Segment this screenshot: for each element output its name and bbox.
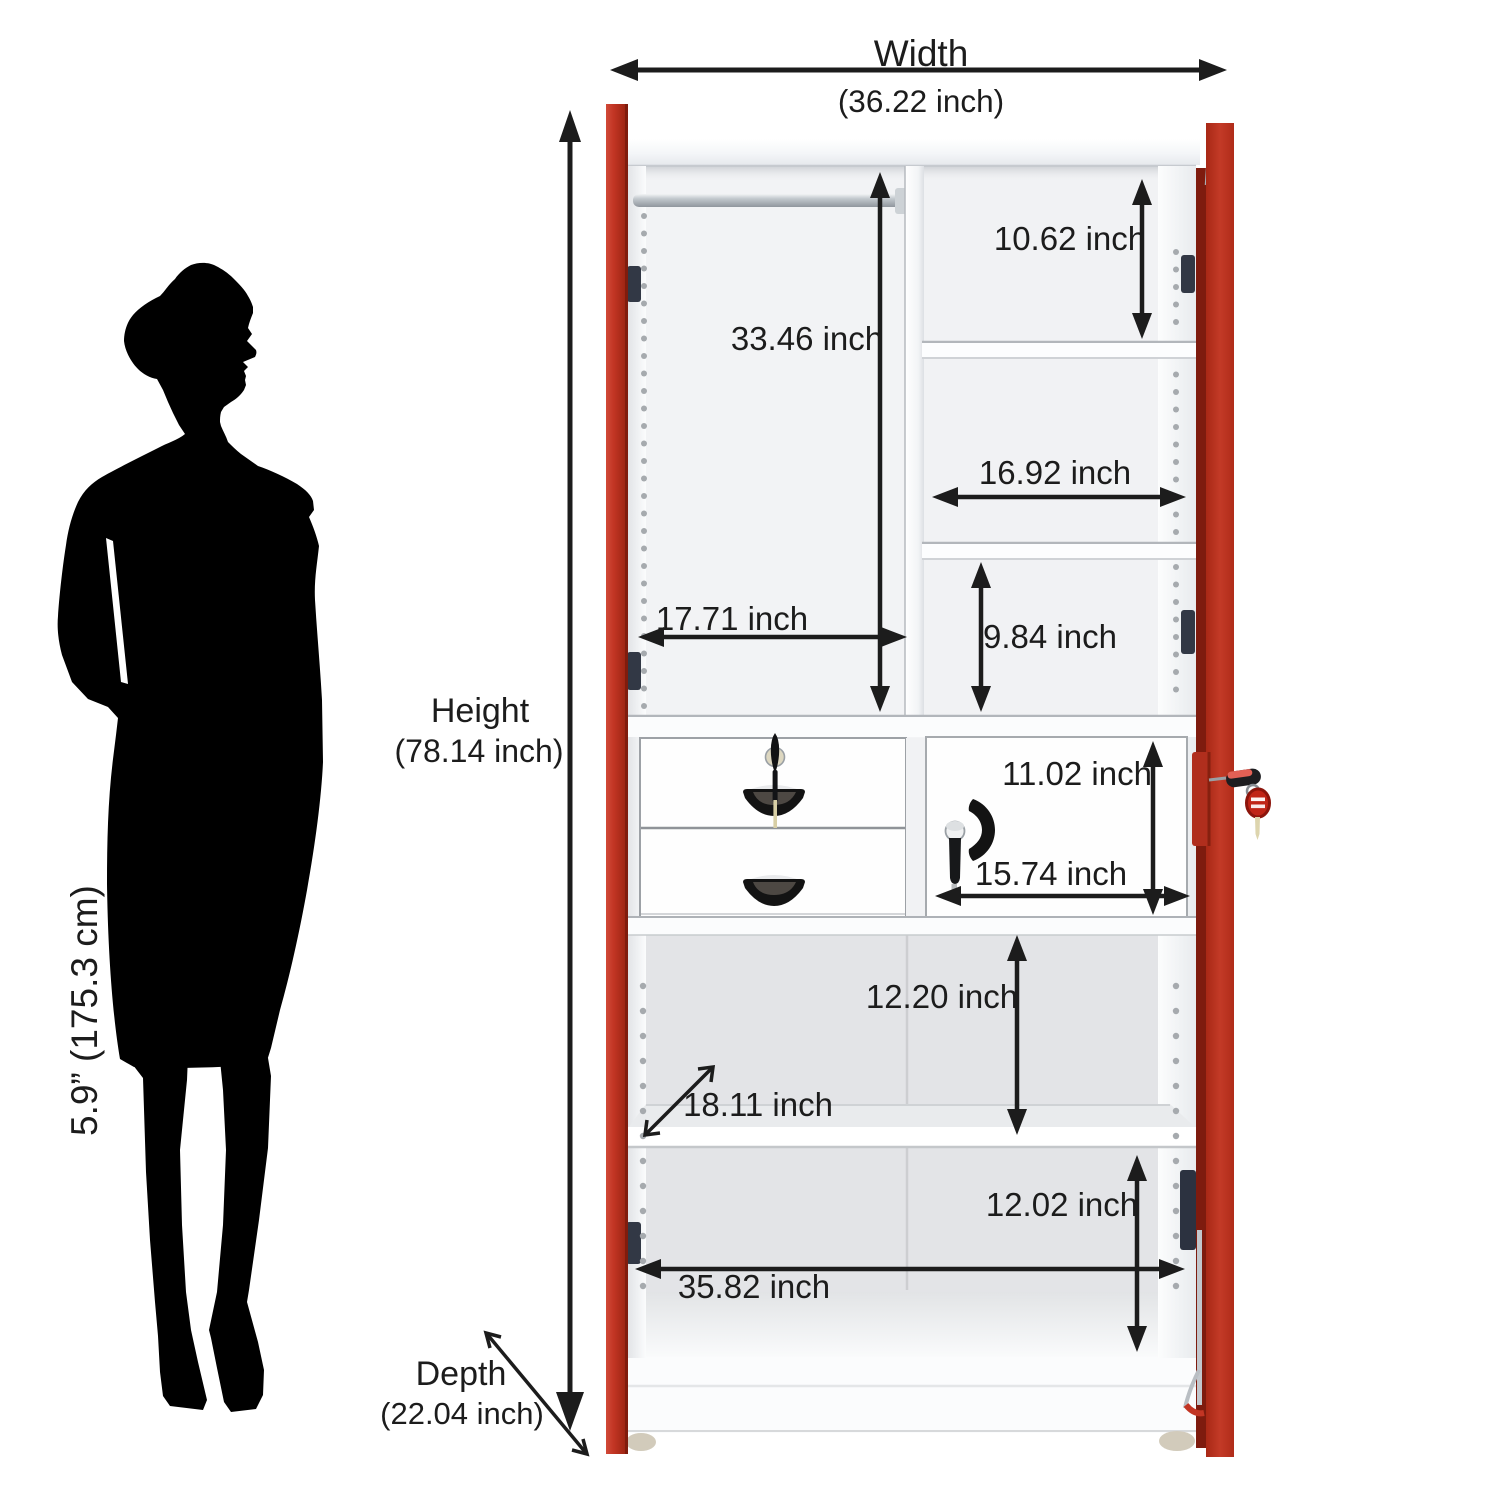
- svg-text:12.02 inch: 12.02 inch: [986, 1186, 1138, 1223]
- svg-text:12.20 inch: 12.20 inch: [866, 978, 1018, 1015]
- svg-text:Height: Height: [431, 692, 530, 730]
- svg-text:Depth: Depth: [416, 1355, 507, 1393]
- svg-text:(78.14 inch): (78.14 inch): [395, 733, 564, 769]
- svg-text:17.71 inch: 17.71 inch: [656, 600, 808, 637]
- svg-text:(36.22 inch): (36.22 inch): [838, 83, 1004, 119]
- svg-text:11.02 inch: 11.02 inch: [1002, 755, 1152, 792]
- svg-text:18.11 inch: 18.11 inch: [683, 1086, 833, 1123]
- svg-text:Width: Width: [874, 33, 969, 74]
- svg-text:10.62 inch: 10.62 inch: [994, 220, 1146, 257]
- svg-text:5.9” (175.3 cm): 5.9” (175.3 cm): [64, 885, 105, 1136]
- svg-text:16.92 inch: 16.92 inch: [979, 454, 1131, 491]
- svg-text:9.84 inch: 9.84 inch: [983, 618, 1117, 655]
- svg-text:33.46 inch: 33.46 inch: [731, 320, 883, 357]
- svg-text:(22.04 inch): (22.04 inch): [380, 1396, 544, 1431]
- svg-text:15.74 inch: 15.74 inch: [975, 855, 1127, 892]
- svg-text:35.82 inch: 35.82 inch: [678, 1268, 830, 1305]
